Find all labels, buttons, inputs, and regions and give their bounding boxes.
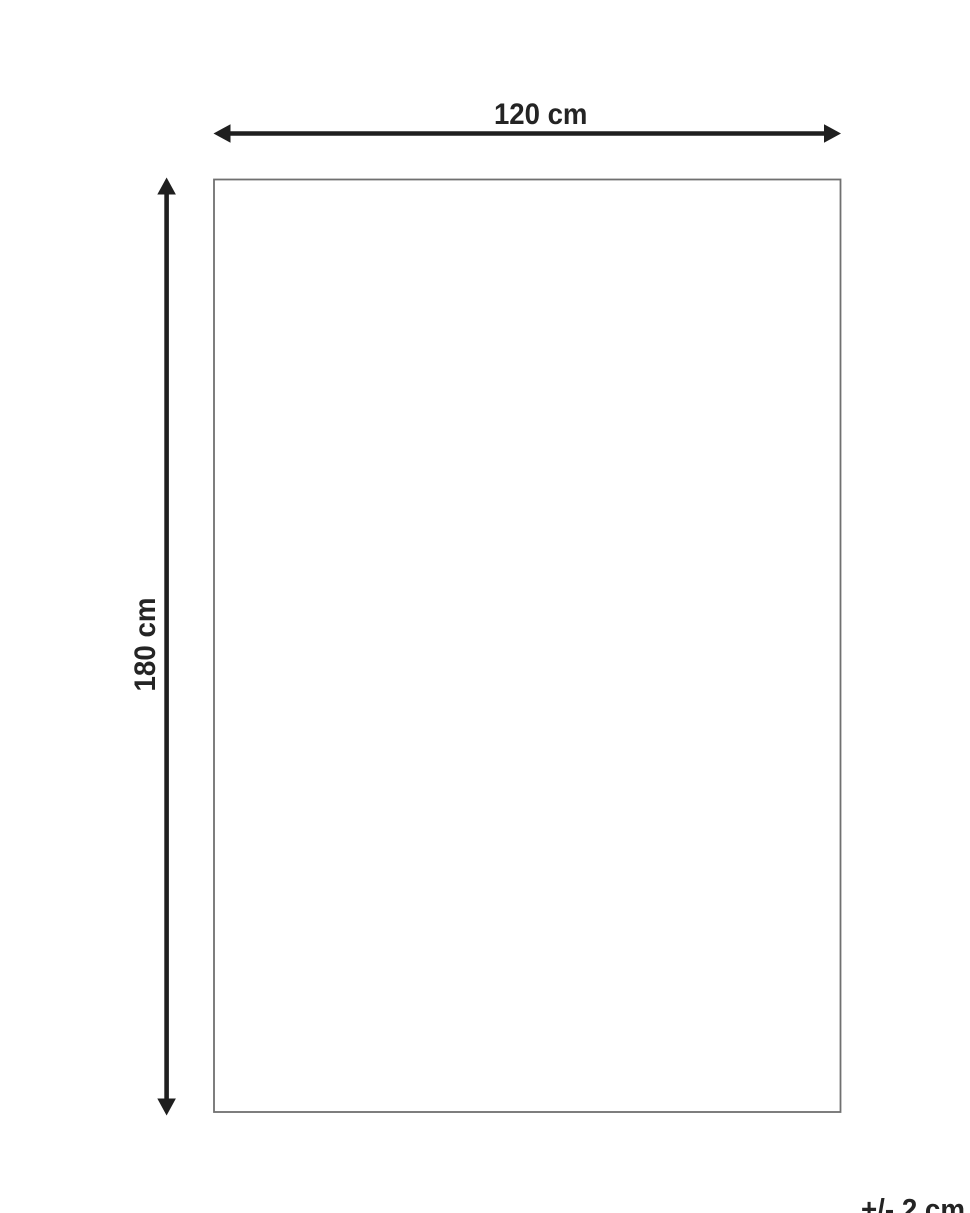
svg-text:+/- 2 cm: +/- 2 cm — [861, 1194, 965, 1213]
svg-text:180 cm: 180 cm — [129, 598, 162, 692]
svg-text:120 cm: 120 cm — [494, 98, 588, 131]
